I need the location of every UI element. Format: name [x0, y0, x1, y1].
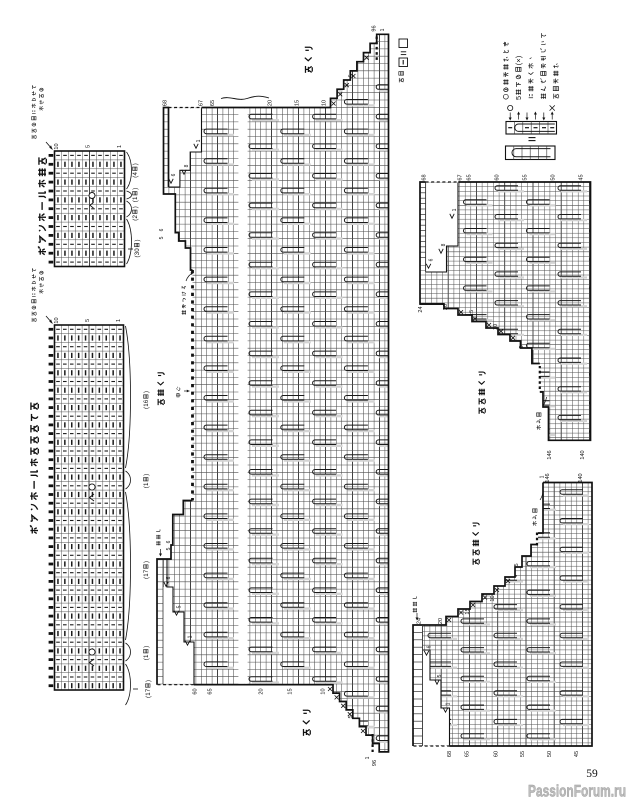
svg-text:0: 0: [134, 248, 141, 252]
svg-text:8: 8: [447, 751, 453, 754]
svg-text:0: 0: [494, 751, 500, 754]
svg-text:0: 0: [321, 100, 327, 103]
svg-text:59: 59: [586, 768, 598, 780]
svg-text:6: 6: [372, 760, 378, 763]
svg-text:6: 6: [427, 645, 433, 648]
svg-text:): ): [132, 163, 139, 165]
svg-text:): ): [143, 646, 150, 648]
svg-text:5: 5: [348, 715, 354, 718]
svg-text:5: 5: [579, 174, 585, 177]
svg-text:): ): [132, 188, 139, 190]
svg-text:1: 1: [452, 208, 458, 211]
svg-text:7: 7: [458, 174, 464, 177]
svg-text:): ): [134, 239, 141, 241]
svg-text:0: 0: [321, 688, 327, 691]
svg-text:5: 5: [523, 174, 529, 177]
svg-text:6: 6: [143, 399, 150, 403]
svg-text:1: 1: [365, 756, 371, 759]
svg-text:0: 0: [54, 317, 60, 320]
svg-text:0: 0: [443, 304, 449, 307]
svg-text:1: 1: [116, 319, 122, 322]
svg-text:5: 5: [514, 563, 520, 566]
svg-text:): ): [514, 56, 523, 58]
svg-text:0: 0: [551, 174, 557, 177]
svg-text:2: 2: [132, 214, 139, 218]
svg-text:5: 5: [288, 688, 294, 691]
svg-text:6: 6: [545, 473, 551, 476]
svg-text:1: 1: [380, 28, 386, 31]
svg-text:5: 5: [210, 100, 216, 103]
svg-text:8: 8: [441, 243, 447, 246]
svg-text:0: 0: [578, 473, 584, 476]
svg-text:0: 0: [259, 688, 265, 691]
svg-text:8: 8: [184, 164, 190, 167]
svg-text:5: 5: [166, 547, 172, 550]
svg-text:0: 0: [193, 688, 199, 691]
svg-text:0: 0: [490, 595, 496, 598]
svg-text:6: 6: [171, 173, 177, 176]
svg-text:4: 4: [132, 171, 139, 175]
svg-text:0: 0: [580, 450, 586, 453]
svg-text:5: 5: [467, 174, 473, 177]
svg-text:8: 8: [163, 100, 169, 103]
svg-text:): ): [132, 206, 139, 208]
svg-text:5: 5: [86, 145, 92, 148]
svg-text:6: 6: [429, 258, 435, 261]
svg-text:7: 7: [145, 688, 152, 692]
svg-text:1: 1: [143, 482, 150, 486]
svg-text:0: 0: [547, 751, 553, 754]
svg-text:7: 7: [143, 569, 150, 573]
svg-text:0: 0: [495, 174, 501, 177]
svg-text:0: 0: [438, 618, 444, 621]
svg-text:5: 5: [295, 100, 301, 103]
svg-text:PassionForum.ru: PassionForum.ru: [528, 783, 626, 800]
svg-text:1: 1: [446, 702, 452, 705]
svg-text:5: 5: [520, 751, 526, 754]
svg-text:5: 5: [465, 751, 471, 754]
svg-text:5: 5: [159, 236, 165, 239]
svg-text:1: 1: [188, 635, 194, 638]
svg-text:5: 5: [574, 751, 580, 754]
svg-text:1: 1: [540, 475, 546, 478]
svg-text:5: 5: [514, 96, 523, 100]
svg-text:5: 5: [519, 345, 525, 348]
svg-text:5: 5: [207, 688, 213, 691]
svg-text:6: 6: [159, 228, 165, 231]
svg-text:): ): [143, 391, 150, 393]
svg-text:5: 5: [177, 605, 183, 608]
svg-text:1: 1: [117, 145, 123, 148]
svg-text:7: 7: [199, 100, 205, 103]
svg-text:6: 6: [166, 576, 172, 579]
svg-text:4: 4: [418, 306, 424, 309]
svg-text:6: 6: [166, 540, 172, 543]
svg-text:0: 0: [493, 324, 499, 327]
svg-text:1: 1: [132, 196, 139, 200]
svg-text:1: 1: [143, 654, 150, 658]
svg-text:5: 5: [349, 74, 355, 77]
svg-text:5: 5: [85, 319, 91, 322]
svg-text:6: 6: [547, 450, 553, 453]
svg-text:): ): [143, 474, 150, 476]
svg-text:0: 0: [268, 100, 274, 103]
svg-text:0: 0: [54, 143, 60, 146]
svg-text:6: 6: [372, 25, 378, 28]
svg-text:): ): [143, 561, 150, 563]
svg-text:8: 8: [422, 174, 428, 177]
svg-text:1: 1: [196, 139, 202, 142]
svg-text:5: 5: [437, 674, 443, 677]
svg-text:5: 5: [465, 608, 471, 611]
svg-text:): ): [145, 680, 152, 682]
svg-text:5: 5: [469, 310, 475, 313]
